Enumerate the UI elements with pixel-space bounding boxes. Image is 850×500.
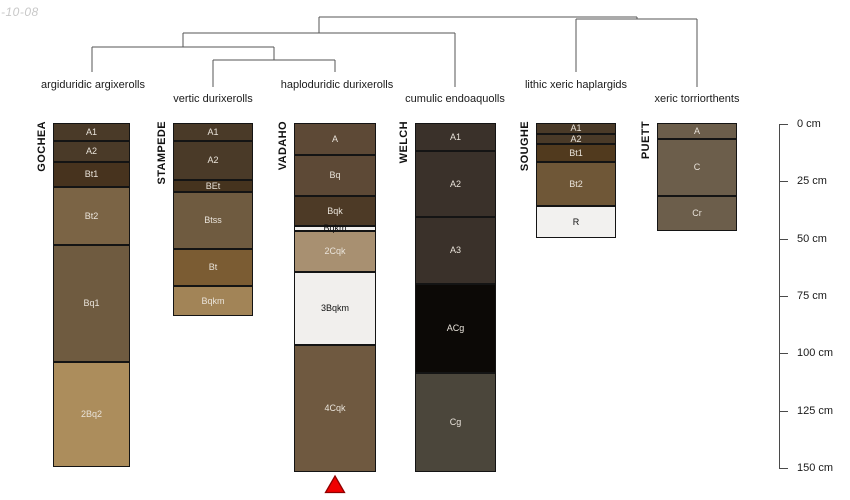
depth-axis-tick bbox=[779, 296, 788, 297]
profile-column: A1A2Bt1Bt2Bq12Bq2 bbox=[53, 123, 130, 467]
horizon-label: C bbox=[694, 163, 701, 172]
watermark-date: -10-08 bbox=[1, 5, 39, 19]
horizon-layer: Bt2 bbox=[53, 187, 130, 245]
profile-column: A1A2BEtBtssBtBqkm bbox=[173, 123, 253, 316]
profile-name: VADAHO bbox=[277, 121, 289, 170]
horizon-label: A1 bbox=[450, 133, 461, 142]
horizon-label: 3Bqkm bbox=[321, 304, 349, 313]
profile-name: PUETT bbox=[640, 121, 652, 159]
horizon-label: 4Cqk bbox=[324, 404, 345, 413]
horizon-layer: BEt bbox=[173, 180, 253, 192]
triangle-up-icon bbox=[326, 476, 345, 493]
horizon-layer: A1 bbox=[536, 123, 616, 134]
horizon-layer: A1 bbox=[415, 123, 496, 151]
horizon-layer: 2Cqk bbox=[294, 231, 376, 272]
horizon-label: 2Bq2 bbox=[81, 410, 102, 419]
depth-axis-tick bbox=[779, 353, 788, 354]
figure-canvas: -10-08 argiduridic argixerollsvertic dur… bbox=[0, 0, 850, 500]
horizon-layer: A1 bbox=[173, 123, 253, 141]
horizon-layer: A2 bbox=[173, 141, 253, 180]
horizon-label: Bq1 bbox=[83, 299, 99, 308]
horizon-layer: A2 bbox=[415, 151, 496, 217]
horizon-label: Bt bbox=[209, 263, 218, 272]
horizon-label: A1 bbox=[570, 124, 581, 133]
profile-column: ABqBqkBqkm2Cqk3Bqkm4Cqk bbox=[294, 123, 376, 472]
horizon-label: A1 bbox=[207, 128, 218, 137]
horizon-label: Bqkm bbox=[323, 224, 346, 233]
depth-axis-tick-label: 125 cm bbox=[797, 405, 833, 417]
horizon-layer: A1 bbox=[53, 123, 130, 141]
depth-axis-tick-label: 50 cm bbox=[797, 233, 827, 245]
depth-axis-tick-label: 150 cm bbox=[797, 462, 833, 474]
horizon-layer: 4Cqk bbox=[294, 345, 376, 472]
horizon-label: A bbox=[694, 127, 700, 136]
horizon-layer: ACg bbox=[415, 284, 496, 373]
depth-axis-tick bbox=[779, 468, 788, 469]
depth-axis-tick-label: 25 cm bbox=[797, 175, 827, 187]
horizon-layer: A2 bbox=[536, 134, 616, 144]
horizon-label: Cr bbox=[692, 209, 702, 218]
taxon-label: xeric torriorthents bbox=[655, 93, 740, 105]
horizon-label: Bq bbox=[329, 171, 340, 180]
horizon-label: Bqk bbox=[327, 207, 343, 216]
horizon-layer: Bt1 bbox=[536, 144, 616, 162]
horizon-layer: R bbox=[536, 206, 616, 238]
horizon-label: BEt bbox=[206, 182, 221, 191]
horizon-label: A bbox=[332, 135, 338, 144]
horizon-layer: 2Bq2 bbox=[53, 362, 130, 467]
depth-axis-tick bbox=[779, 239, 788, 240]
horizon-layer: Bt1 bbox=[53, 162, 130, 187]
horizon-label: 2Cqk bbox=[324, 247, 345, 256]
horizon-label: Bt1 bbox=[569, 149, 583, 158]
depth-axis-tick-label: 75 cm bbox=[797, 290, 827, 302]
depth-axis-tick bbox=[779, 411, 788, 412]
profile-column: A1A2A3ACgCg bbox=[415, 123, 496, 472]
horizon-label: A3 bbox=[450, 246, 461, 255]
horizon-label: Bt2 bbox=[85, 212, 99, 221]
horizon-label: Bqkm bbox=[201, 297, 224, 306]
taxon-label: vertic durixerolls bbox=[173, 93, 252, 105]
horizon-label: A2 bbox=[86, 147, 97, 156]
horizon-layer: 3Bqkm bbox=[294, 272, 376, 345]
horizon-layer: Bt2 bbox=[536, 162, 616, 206]
horizon-layer: A bbox=[294, 123, 376, 155]
horizon-layer: Bq bbox=[294, 155, 376, 196]
horizon-label: A2 bbox=[207, 156, 218, 165]
taxon-label: lithic xeric haplargids bbox=[525, 79, 627, 91]
profile-column: A1A2Bt1Bt2R bbox=[536, 123, 616, 238]
depth-axis-tick-label: 100 cm bbox=[797, 347, 833, 359]
horizon-label: A1 bbox=[86, 128, 97, 137]
horizon-layer: A2 bbox=[53, 141, 130, 162]
taxon-label: cumulic endoaquolls bbox=[405, 93, 505, 105]
depth-axis-tick bbox=[779, 181, 788, 182]
horizon-layer: Bqk bbox=[294, 196, 376, 226]
horizon-layer: C bbox=[657, 139, 737, 196]
horizon-layer: A bbox=[657, 123, 737, 139]
horizon-label: A2 bbox=[450, 180, 461, 189]
horizon-layer: A3 bbox=[415, 217, 496, 284]
horizon-layer: Bt bbox=[173, 249, 253, 286]
horizon-label: R bbox=[573, 218, 580, 227]
taxon-label: haploduridic durixerolls bbox=[281, 79, 394, 91]
horizon-layer: Bq1 bbox=[53, 245, 130, 362]
profile-name: SOUGHE bbox=[519, 121, 531, 171]
horizon-label: A2 bbox=[570, 135, 581, 144]
horizon-label: Bt2 bbox=[569, 180, 583, 189]
horizon-label: Btss bbox=[204, 216, 222, 225]
profile-name: STAMPEDE bbox=[156, 121, 168, 185]
horizon-layer: Cr bbox=[657, 196, 737, 231]
depth-axis-tick bbox=[779, 124, 788, 125]
profile-name: WELCH bbox=[398, 121, 410, 163]
horizon-label: Bt1 bbox=[85, 170, 99, 179]
horizon-label: Cg bbox=[450, 418, 462, 427]
horizon-layer: Bqkm bbox=[173, 286, 253, 316]
profile-column: ACCr bbox=[657, 123, 737, 231]
horizon-layer: Cg bbox=[415, 373, 496, 472]
horizon-layer: Btss bbox=[173, 192, 253, 249]
profile-name: GOCHEA bbox=[36, 121, 48, 172]
horizon-label: ACg bbox=[447, 324, 465, 333]
depth-axis-tick-label: 0 cm bbox=[797, 118, 821, 130]
taxon-label: argiduridic argixerolls bbox=[41, 79, 145, 91]
